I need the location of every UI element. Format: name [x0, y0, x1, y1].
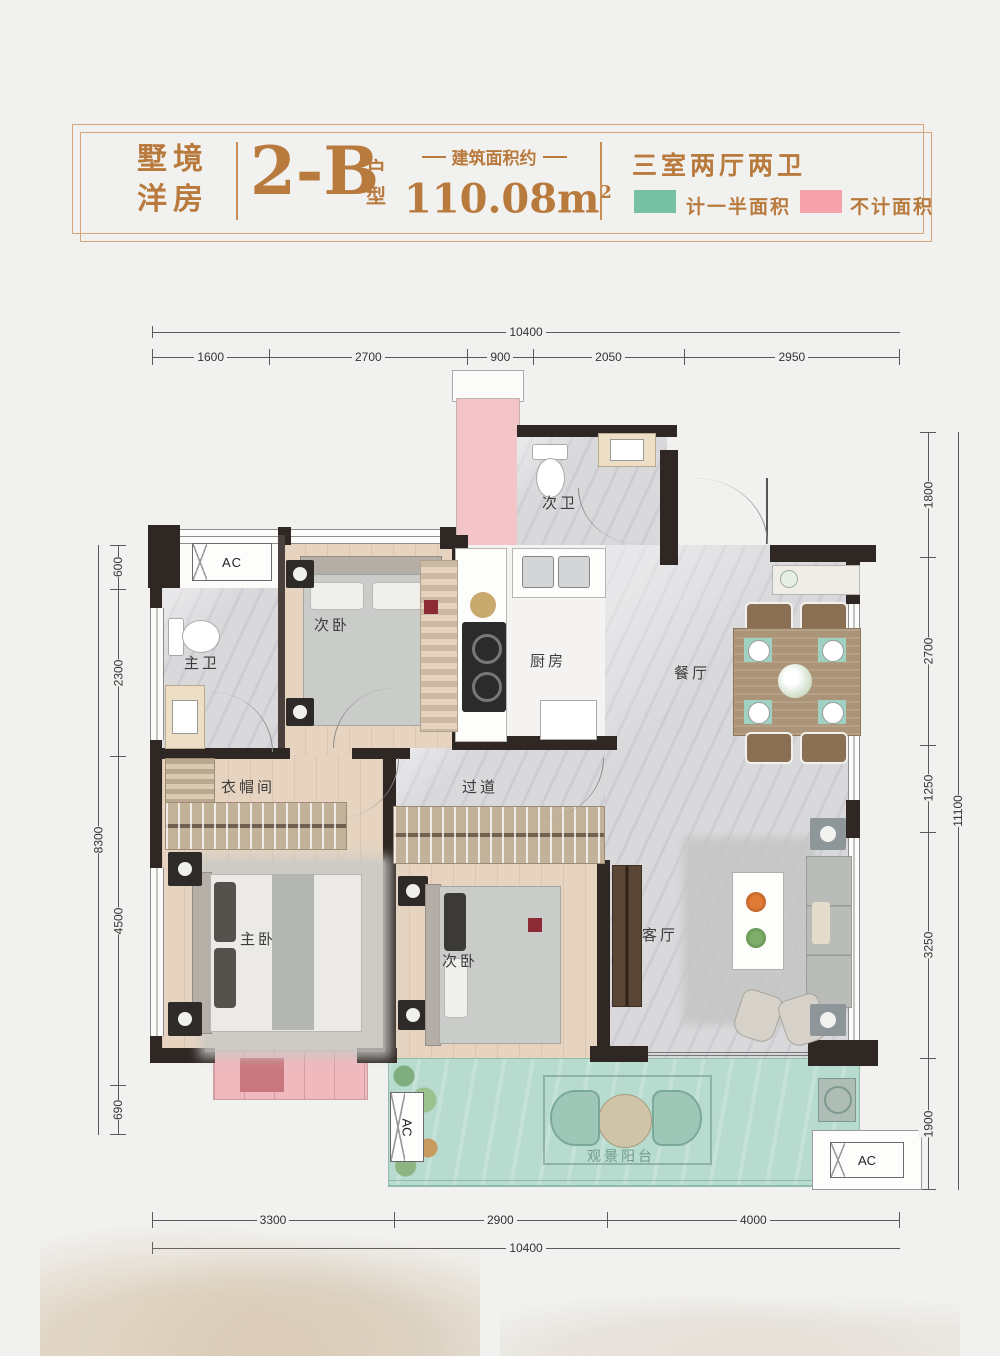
sofa-cushion — [812, 902, 830, 944]
burner — [472, 634, 502, 664]
layout-summary: 三室两厅两卫 — [632, 146, 806, 182]
sideboard-plant — [780, 570, 798, 588]
dim-bottom-total-label: 10400 — [506, 1241, 545, 1255]
dim-seg: 1600 — [152, 349, 269, 365]
header-divider-2 — [600, 142, 602, 220]
table-plant — [746, 928, 766, 948]
bay-seat-table — [240, 1058, 284, 1092]
dim-seg: 2700 — [920, 557, 936, 745]
plate — [748, 640, 770, 662]
dim-seg: 2300 — [110, 589, 126, 757]
table-centerpiece — [778, 664, 812, 698]
unit-code: 2-B — [250, 136, 379, 206]
dim-seg: 600 — [110, 545, 126, 589]
sink — [610, 439, 644, 461]
flue-excluded-area — [456, 398, 520, 547]
pillow — [372, 582, 426, 610]
header-divider-1 — [236, 142, 238, 220]
sink-basin — [522, 556, 554, 588]
room-label-hallway: 过道 — [448, 776, 512, 797]
series-name: 墅境 洋房 — [118, 140, 228, 220]
sink — [172, 700, 198, 734]
area-label: 建筑面积约 — [452, 144, 537, 169]
dim-top-total: 10400 — [152, 324, 900, 340]
dim-right-total-label: 11100 — [948, 795, 968, 827]
dim-seg: 1900 — [920, 1058, 936, 1190]
bed-runner — [272, 874, 314, 1030]
nightstand — [286, 698, 314, 726]
nightstand — [286, 560, 314, 588]
room-label-secondary-bath: 次卫 — [528, 492, 592, 513]
pillow — [214, 948, 236, 1008]
dim-top-total-label: 10400 — [506, 325, 545, 339]
plate — [748, 702, 770, 724]
plate — [822, 640, 844, 662]
dim-right-total: 11100 — [950, 432, 966, 1190]
wall — [590, 1046, 648, 1062]
balcony-chair — [652, 1090, 702, 1146]
nightstand — [398, 876, 428, 906]
dim-seg: 2700 — [269, 349, 467, 365]
plate — [822, 702, 844, 724]
nightstand — [398, 1000, 428, 1030]
series-line2: 洋房 — [118, 180, 228, 220]
dim-seg: 4000 — [607, 1212, 900, 1228]
dim-seg: 4500 — [110, 756, 126, 1084]
wall — [846, 800, 860, 838]
unit-suffix-top: 户 — [366, 156, 386, 183]
dim-left-total: 8300 — [90, 545, 106, 1135]
ac-label-box-left: AC — [390, 1092, 424, 1162]
area-value-row: 110.08m2 — [404, 169, 584, 223]
toilet-bowl — [182, 620, 220, 653]
coffee-table — [732, 872, 784, 970]
ac-label-box-top: AC — [192, 543, 272, 581]
side-table — [810, 1004, 846, 1036]
dim-top-segments: 1600 2700 900 2050 2950 — [152, 349, 900, 365]
dining-chair — [800, 732, 848, 764]
wall-partition — [278, 535, 285, 755]
dim-seg: 2950 — [684, 349, 900, 365]
cloakroom-wardrobe — [165, 802, 347, 850]
nightstand — [168, 1002, 202, 1036]
decor-accent — [528, 918, 542, 932]
area-label-row: 建筑面积约 — [404, 144, 584, 169]
area-dash-right — [543, 156, 567, 158]
room-label-living: 客厅 — [624, 924, 696, 945]
wall — [660, 450, 678, 565]
window — [150, 608, 164, 740]
room-label-master-bath: 主卫 — [170, 652, 234, 673]
mountain-watermark-right — [500, 1290, 960, 1356]
unit-suffix-bottom: 型 — [366, 183, 386, 210]
legend-label-half-area: 计一半面积 — [686, 192, 791, 219]
fridge — [540, 700, 597, 740]
sink-basin — [558, 556, 590, 588]
window — [150, 868, 164, 1036]
legend-swatch-excluded — [800, 190, 842, 213]
balcony-chair — [550, 1090, 600, 1146]
nightstand — [168, 852, 202, 886]
ac-label-box-right: AC — [830, 1142, 904, 1178]
burner — [472, 672, 502, 702]
ac-fan-icon — [824, 1086, 852, 1114]
fruit-bowl — [746, 892, 766, 912]
dining-chair — [745, 732, 793, 764]
area-block: 建筑面积约 110.08m2 — [404, 144, 584, 223]
dim-seg: 1250 — [920, 745, 936, 832]
balcony-rail — [388, 1180, 858, 1186]
pillow — [444, 893, 466, 951]
side-table — [810, 818, 846, 850]
wall — [808, 1040, 878, 1066]
legend-swatch-half-area — [634, 190, 676, 213]
mountain-watermark-left — [40, 1210, 480, 1356]
bay-seat-excluded-area — [213, 1050, 368, 1100]
entry-door-arc — [695, 478, 768, 544]
wall — [770, 545, 876, 562]
window — [180, 529, 452, 544]
room-label-dining: 餐厅 — [656, 662, 728, 683]
room-label-bedroom-bottom: 次卧 — [428, 950, 492, 971]
wall — [148, 525, 180, 588]
dim-left-segments: 600 2300 4500 690 — [110, 545, 126, 1135]
room-label-bedroom-top: 次卧 — [300, 614, 364, 635]
dim-left-total-label: 8300 — [88, 827, 108, 854]
dim-bottom-segments: 3300 2900 4000 — [152, 1212, 900, 1228]
wall — [597, 860, 610, 1060]
dim-seg: 900 — [467, 349, 533, 365]
dim-seg: 690 — [110, 1085, 126, 1135]
legend-label-excluded: 不计面积 — [850, 192, 934, 219]
closet-shelves — [420, 560, 458, 732]
area-value: 110.08m — [404, 175, 599, 222]
room-label-master-bedroom: 主卧 — [226, 928, 290, 949]
room-label-kitchen: 厨房 — [516, 650, 580, 671]
balcony-table — [598, 1094, 652, 1148]
room-label-balcony: 观景阳台 — [566, 1146, 676, 1166]
unit-suffix: 户 型 — [366, 156, 386, 210]
room-label-cloakroom: 衣帽间 — [208, 776, 288, 797]
series-line1: 墅境 — [118, 140, 228, 180]
area-dash-left — [422, 156, 446, 158]
cutting-board — [470, 592, 496, 618]
decor-accent — [424, 600, 438, 614]
wardrobe — [393, 806, 605, 864]
dim-seg: 1800 — [920, 432, 936, 557]
sliding-window — [648, 1052, 808, 1056]
pillow — [310, 582, 364, 610]
floorplan-page: 墅境 洋房 2-B 户 型 建筑面积约 110.08m2 三室两厅两卫 计一半面… — [0, 0, 1000, 1356]
dim-seg: 3250 — [920, 832, 936, 1058]
dim-right-segments: 1800 2700 1250 3250 1900 — [920, 432, 936, 1190]
dim-seg: 2050 — [533, 349, 683, 365]
